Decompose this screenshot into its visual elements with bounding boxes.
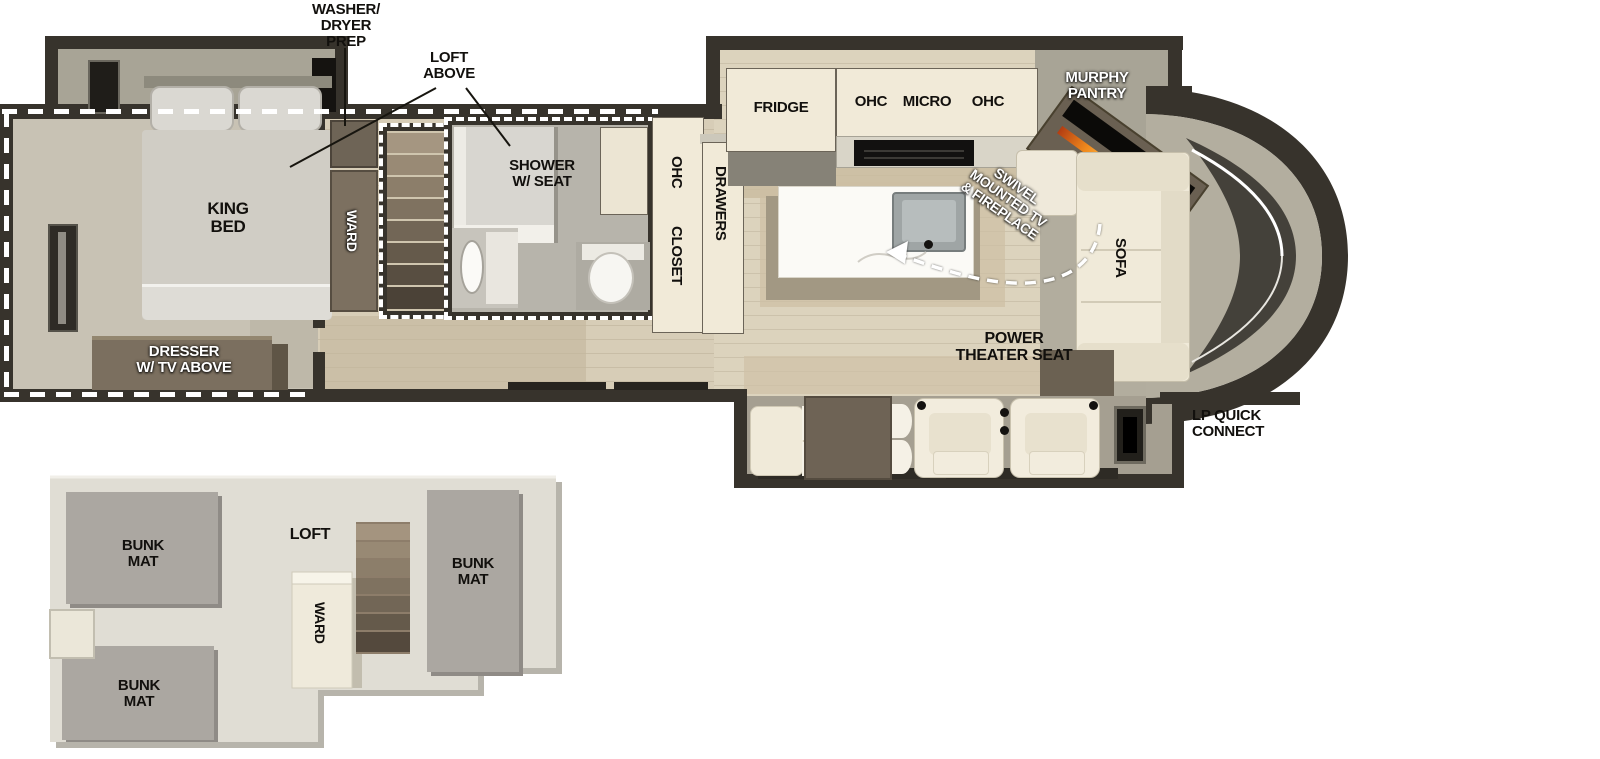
loft-step-cube — [50, 610, 94, 658]
floorplan-canvas: WASHER/ DRYER PREP LOFT ABOVE KING BED W… — [0, 0, 1600, 759]
loft-label: LOFT — [282, 526, 338, 543]
loft-ward-label: WARD — [312, 602, 327, 644]
loft-stairs — [356, 522, 410, 654]
bunk-top-label: BUNK MAT — [100, 538, 186, 570]
bunk-right-label: BUNK MAT — [430, 556, 516, 588]
bunk-bottom-label: BUNK MAT — [96, 678, 182, 710]
loft-plan — [0, 0, 1600, 759]
